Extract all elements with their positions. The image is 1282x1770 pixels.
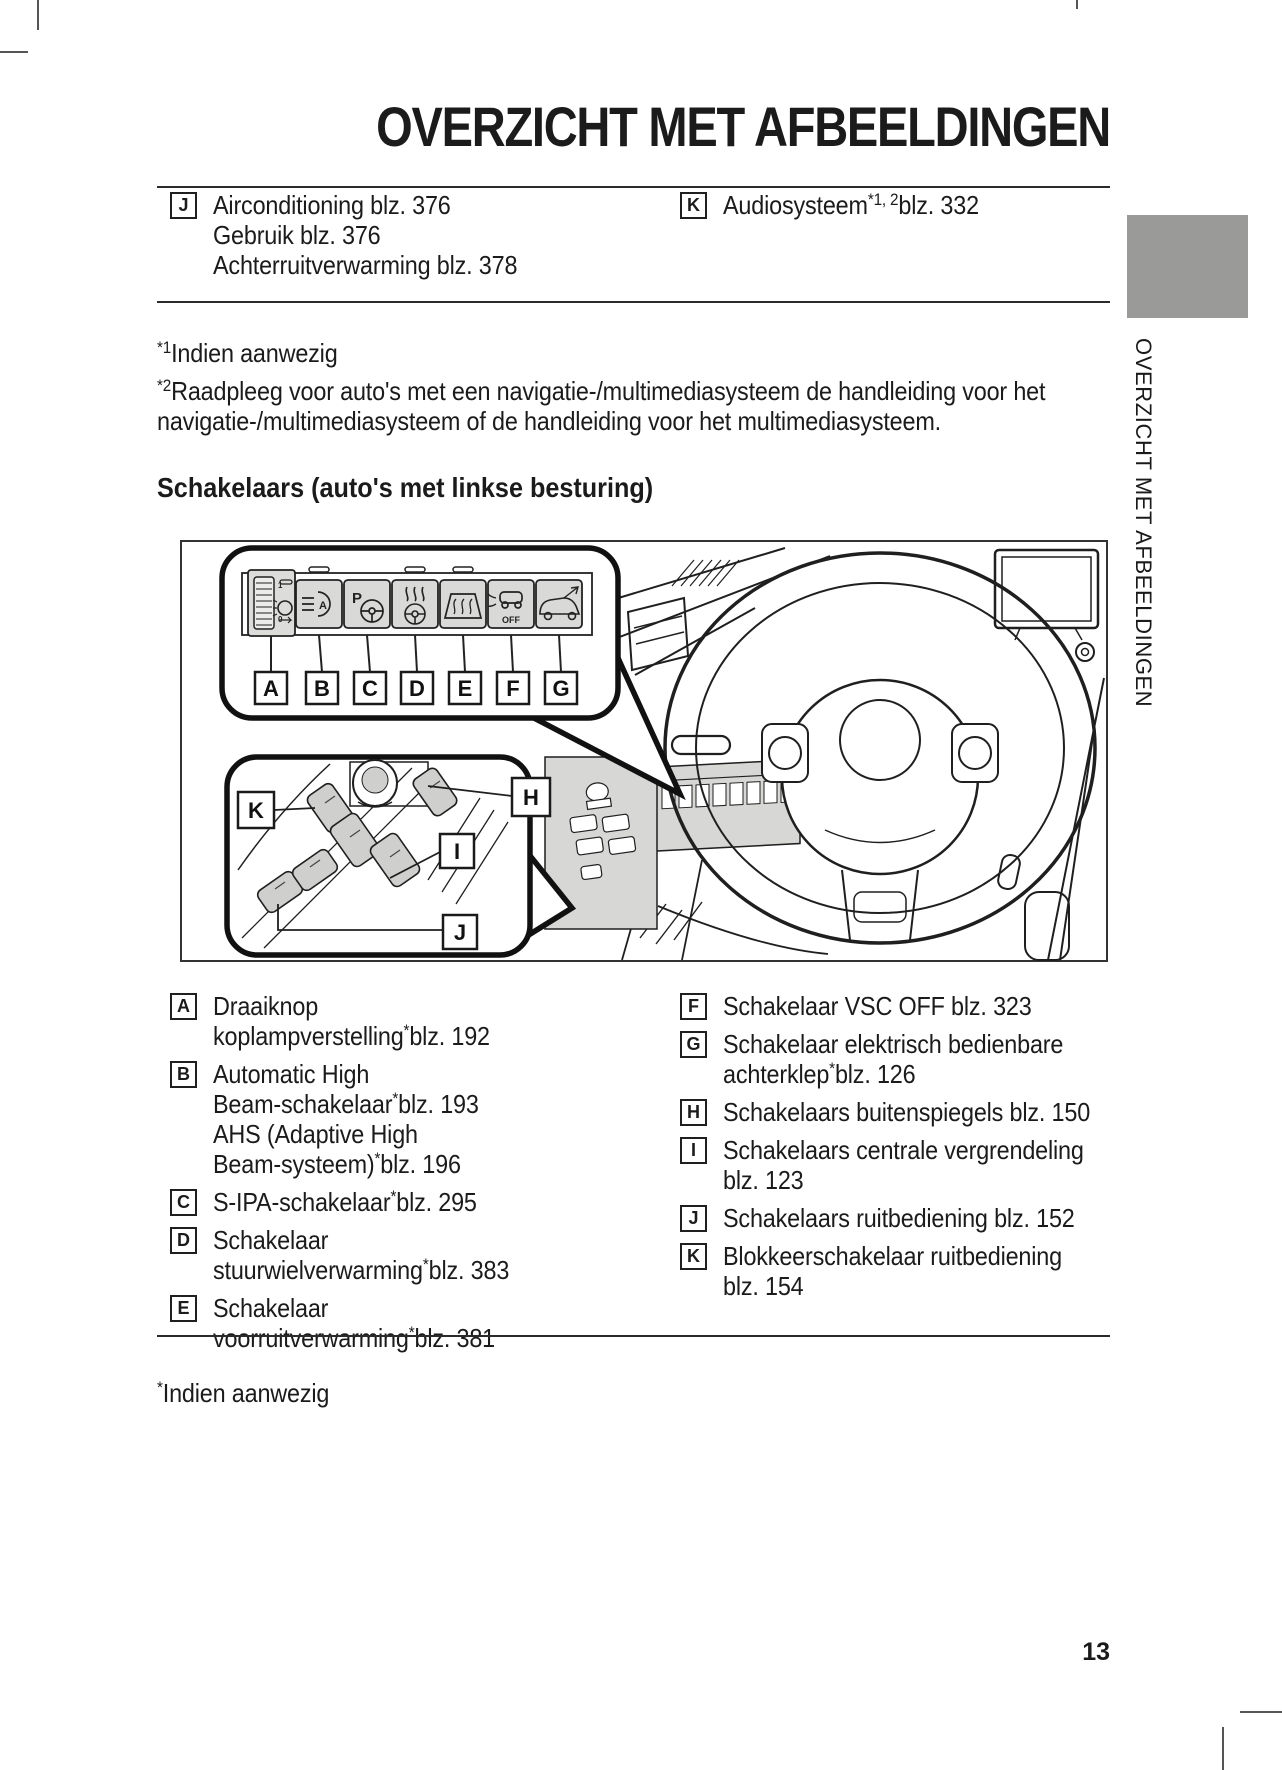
top-legend-column-left: JAirconditioning blz. 376Gebruik blz. 37… — [170, 190, 670, 288]
svg-text:B: B — [314, 676, 330, 701]
legend-text: Airconditioning blz. 376Gebruik blz. 376… — [213, 190, 551, 280]
footnote-1: *1Indien aanwezig — [157, 338, 358, 368]
legend-item: ADraaiknopkoplampverstelling*blz. 192 — [170, 991, 670, 1051]
legend-line: Schakelaar elektrisch bedienbare — [723, 1029, 1063, 1059]
legend-letter-box: G — [680, 1031, 707, 1058]
legend-line: koplampverstelling*blz. 192 — [213, 1021, 490, 1055]
legend-line: Airconditioning blz. 376 — [213, 190, 451, 220]
superscript-marker: * — [157, 1378, 163, 1397]
svg-text:G: G — [552, 676, 569, 701]
legend-text: Schakelaarvoorruitverwarming*blz. 381 — [213, 1293, 526, 1353]
rule-under-top-legend — [157, 301, 1110, 303]
legend-item: HSchakelaars buitenspiegels blz. 150 — [680, 1097, 1120, 1127]
svg-text:F: F — [506, 676, 519, 701]
page-number: 13 — [1010, 1638, 1110, 1667]
figure-label-I: I — [440, 834, 474, 868]
legend-text: Schakelaars buitenspiegels blz. 150 — [723, 1097, 1131, 1127]
legend-letter-box: A — [170, 993, 197, 1020]
legend-line: AHS (Adaptive High — [213, 1119, 418, 1149]
legend-line: Blokkeerschakelaar ruitbediening — [723, 1241, 1062, 1271]
footnote-line: *2Raadpleeg voor auto's met een navigati… — [157, 376, 1045, 410]
legend-letter-box: C — [170, 1189, 197, 1216]
legend-text: Schakelaars ruitbediening blz. 152 — [723, 1203, 1114, 1233]
legend-letter-box: F — [680, 993, 707, 1020]
legend-line: achterklep*blz. 126 — [723, 1059, 915, 1093]
legend-text: Schakelaar elektrisch bedienbareachterkl… — [723, 1029, 1101, 1089]
legend-item: ISchakelaars centrale vergrendelingblz. … — [680, 1135, 1120, 1195]
legend-line: Schakelaar — [213, 1225, 328, 1255]
legend-item: JSchakelaars ruitbediening blz. 152 — [680, 1203, 1120, 1233]
legend-letter-box: K — [680, 192, 707, 219]
legend-line: Audiosysteem*1, 2blz. 332 — [723, 190, 979, 224]
superscript-marker: *1 — [157, 338, 171, 357]
crop-mark-top-left-v — [37, 0, 39, 30]
figure-label-K: K — [238, 792, 274, 828]
figure-label-J: J — [443, 915, 477, 949]
legend-line: Schakelaar VSC OFF blz. 323 — [723, 991, 1032, 1021]
legend-text: Blokkeerschakelaar ruitbedieningblz. 154 — [723, 1241, 1100, 1301]
figure-label-A: A — [255, 672, 287, 704]
legend-line: Schakelaars ruitbediening blz. 152 — [723, 1203, 1075, 1233]
column-stalk — [672, 736, 730, 754]
crop-mark-top-right-v — [1076, 0, 1078, 9]
legend-right-column: FSchakelaar VSC OFF blz. 323GSchakelaar … — [680, 991, 1120, 1309]
figure-label-E: E — [449, 672, 481, 704]
svg-text:A: A — [319, 600, 327, 612]
legend-left-column: ADraaiknopkoplampverstelling*blz. 192BAu… — [170, 991, 670, 1361]
svg-text:I: I — [454, 839, 460, 864]
legend-line: Achterruitverwarming blz. 378 — [213, 250, 517, 280]
svg-text:P: P — [352, 590, 362, 607]
rule-closing — [157, 1335, 1110, 1337]
superscript-marker: * — [829, 1059, 835, 1078]
legend-item: BAutomatic HighBeam-schakelaar*blz. 193A… — [170, 1059, 670, 1179]
callout-door-controls — [227, 757, 530, 955]
windshield-heating-button — [440, 580, 486, 628]
legend-letter-box: B — [170, 1061, 197, 1088]
svg-text:OFF: OFF — [502, 615, 520, 625]
legend-text: Schakelaarstuurwielverwarming*blz. 383 — [213, 1225, 542, 1285]
crop-mark-top-left-h — [0, 51, 28, 53]
legend-item: GSchakelaar elektrisch bedienbareachterk… — [680, 1029, 1120, 1089]
footnote-2: *2Raadpleeg voor auto's met een navigati… — [157, 376, 1144, 436]
legend-line: stuurwielverwarming*blz. 383 — [213, 1255, 509, 1289]
legend-line: Schakelaars centrale vergrendeling — [723, 1135, 1084, 1165]
footnote-bottom: *Indien aanwezig — [157, 1378, 348, 1408]
crop-mark-bottom-right-h — [1240, 1711, 1282, 1713]
svg-text:H: H — [523, 785, 539, 810]
legend-letter-box: D — [170, 1227, 197, 1254]
mirror-adjust-knob — [353, 760, 397, 807]
figure-label-C: C — [354, 672, 386, 704]
chapter-tab — [1127, 215, 1248, 318]
svg-text:J: J — [454, 920, 466, 945]
legend-item: ESchakelaarvoorruitverwarming*blz. 381 — [170, 1293, 670, 1353]
legend-text: Audiosysteem*1, 2blz. 332 — [723, 190, 1007, 220]
switches-figure: 1 0 — [180, 540, 1108, 962]
figure-label-G: G — [545, 672, 577, 704]
legend-line: Gebruik blz. 376 — [213, 220, 381, 250]
footnote-line: *Indien aanwezig — [157, 1378, 329, 1412]
legend-item: CS-IPA-schakelaar*blz. 295 — [170, 1187, 670, 1217]
legend-line: blz. 123 — [723, 1165, 804, 1195]
figure-label-B: B — [306, 672, 338, 704]
legend-text: Automatic HighBeam-schakelaar*blz. 193AH… — [213, 1059, 508, 1179]
superscript-marker: * — [404, 1021, 410, 1040]
footnote-line: navigatie-/multimediasysteem of de handl… — [157, 406, 941, 436]
superscript-marker: * — [390, 1187, 396, 1206]
legend-line: Beam-systeem)*blz. 196 — [213, 1149, 461, 1183]
legend-line: Schakelaars buitenspiegels blz. 150 — [723, 1097, 1090, 1127]
legend-item: FSchakelaar VSC OFF blz. 323 — [680, 991, 1120, 1021]
legend-letter-box: J — [680, 1205, 707, 1232]
legend-letter-box: K — [680, 1243, 707, 1270]
legend-text: Schakelaars centrale vergrendelingblz. 1… — [723, 1135, 1124, 1195]
legend-letter-box: J — [170, 192, 197, 219]
legend-item: DSchakelaarstuurwielverwarming*blz. 383 — [170, 1225, 670, 1285]
manual-page: OVERZICHT MET AFBEELDINGEN OVERZICHT MET… — [0, 0, 1282, 1770]
legend-line: blz. 154 — [723, 1271, 804, 1301]
superscript-marker: *1, 2 — [868, 190, 899, 209]
svg-text:A: A — [263, 676, 279, 701]
figure-label-D: D — [401, 672, 433, 704]
superscript-marker: * — [375, 1149, 381, 1168]
legend-line: Automatic High — [213, 1059, 369, 1089]
top-legend-column-right: KAudiosysteem*1, 2blz. 332 — [680, 190, 1120, 228]
legend-line: Beam-schakelaar*blz. 193 — [213, 1089, 479, 1123]
svg-text:K: K — [248, 798, 264, 823]
headlight-leveling-dial-icon: 1 0 — [248, 570, 295, 636]
legend-item: JAirconditioning blz. 376Gebruik blz. 37… — [170, 190, 670, 280]
crop-mark-bottom-right-v — [1222, 1727, 1224, 1770]
rule-top — [157, 186, 1110, 188]
legend-letter-box: E — [170, 1295, 197, 1322]
svg-text:D: D — [409, 676, 425, 701]
superscript-marker: * — [409, 1323, 415, 1342]
legend-text: S-IPA-schakelaar*blz. 295 — [213, 1187, 506, 1217]
figure-label-H: H — [512, 778, 550, 816]
legend-item: KBlokkeerschakelaar ruitbedieningblz. 15… — [680, 1241, 1120, 1301]
legend-letter-box: H — [680, 1099, 707, 1126]
page-title: OVERZICHT MET AFBEELDINGEN — [178, 94, 1110, 159]
legend-line: voorruitverwarming*blz. 381 — [213, 1323, 495, 1357]
figure-label-F: F — [497, 672, 529, 704]
section-heading: Schakelaars (auto's met linkse besturing… — [157, 472, 708, 504]
svg-text:C: C — [362, 676, 378, 701]
legend-line: S-IPA-schakelaar*blz. 295 — [213, 1187, 477, 1221]
superscript-marker: *2 — [157, 376, 171, 395]
svg-text:E: E — [458, 676, 473, 701]
superscript-marker: * — [423, 1255, 429, 1274]
legend-line: Schakelaar — [213, 1293, 328, 1323]
legend-letter-box: I — [680, 1137, 707, 1164]
legend-item: KAudiosysteem*1, 2blz. 332 — [680, 190, 1120, 220]
footnote-line: *1Indien aanwezig — [157, 338, 338, 372]
legend-line: Draaiknop — [213, 991, 318, 1021]
superscript-marker: * — [392, 1089, 398, 1108]
legend-text: Draaiknopkoplampverstelling*blz. 192 — [213, 991, 521, 1051]
legend-text: Schakelaar VSC OFF blz. 323 — [723, 991, 1066, 1021]
